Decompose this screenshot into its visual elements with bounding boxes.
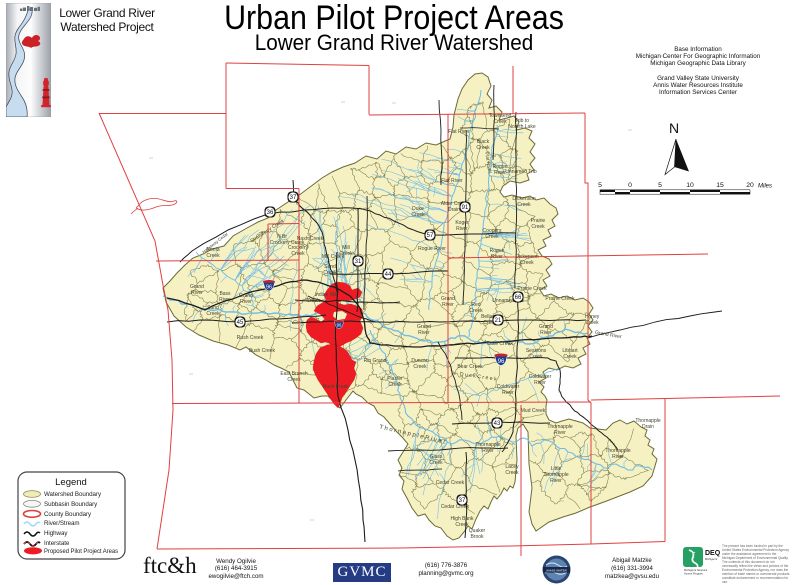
svg-text:County Boundary: County Boundary [44, 511, 92, 518]
svg-text:Prairie Creek: Prairie Creek [545, 296, 575, 302]
svg-text:Creek: Creek [291, 251, 305, 257]
svg-text:==: == [628, 128, 632, 132]
svg-text:==: == [149, 156, 153, 160]
svg-text:Creek: Creek [485, 234, 499, 240]
svg-text:River: River [240, 299, 252, 305]
svg-text:Nourth Lake: Nourth Lake [508, 124, 535, 130]
svg-text:Cedar Creek: Cedar Creek [436, 480, 465, 486]
svg-text:Creek: Creek [563, 354, 577, 360]
svg-text:Creek: Creek [206, 311, 220, 317]
svg-text:Creek: Creek [411, 212, 425, 218]
svg-text:==: == [310, 518, 314, 522]
svg-text:44: 44 [385, 272, 392, 278]
svg-text:Watershed Boundary: Watershed Boundary [44, 491, 102, 498]
svg-text:Mud Creek: Mud Creek [521, 408, 546, 414]
svg-text:River: River [456, 226, 468, 232]
svg-text:Creek: Creek [520, 260, 534, 266]
svg-text:31: 31 [355, 259, 362, 265]
svg-text:Buck Creek: Buck Creek [323, 384, 349, 390]
svg-text:Creek: Creek [469, 308, 483, 314]
svg-text:ANNIS WATER: ANNIS WATER [546, 568, 567, 572]
svg-text:River: River [191, 290, 203, 296]
svg-text:Miles: Miles [758, 184, 772, 190]
svg-text:==: == [392, 101, 396, 105]
svg-text:Source Program: Source Program [684, 572, 703, 576]
svg-text:Creek: Creek [388, 382, 402, 388]
svg-text:Drain: Drain [642, 424, 654, 430]
svg-text:Creek: Creek [287, 377, 301, 383]
svg-text:==: == [189, 372, 193, 376]
svg-text:Rio Grand: Rio Grand [364, 358, 387, 364]
svg-text:Michigan's Nonpoint: Michigan's Nonpoint [684, 568, 708, 572]
svg-text:River: River [219, 297, 231, 303]
svg-text:0: 0 [628, 182, 632, 189]
svg-text:Bear Creek: Bear Creek [457, 364, 483, 370]
svg-text:DEQ: DEQ [705, 550, 721, 557]
svg-text:Creek: Creek [505, 470, 519, 476]
svg-text:Creek: Creek [413, 364, 427, 370]
svg-text:Highway: Highway [44, 530, 68, 537]
svg-text:River: River [418, 330, 430, 336]
svg-text:River: River [482, 448, 494, 454]
svg-text:5: 5 [658, 182, 662, 189]
svg-text:River: River [534, 380, 546, 386]
svg-text:Creek: Creek [455, 522, 469, 528]
svg-text:River: River [612, 454, 624, 460]
svg-text:45: 45 [237, 320, 244, 326]
svg-text:River/Stream: River/Stream [44, 520, 80, 527]
svg-text:36: 36 [267, 210, 274, 216]
svg-text:River: River [540, 330, 552, 336]
svg-text:Rogue River: Rogue River [418, 246, 446, 252]
svg-text:Unnamed Trib: Unnamed Trib [505, 169, 537, 175]
svg-text:Michigan's: Michigan's [705, 557, 718, 561]
svg-text:10: 10 [686, 182, 694, 189]
svg-text:Flat River: Flat River [441, 178, 463, 184]
svg-text:River: River [442, 302, 454, 308]
svg-text:20: 20 [746, 182, 754, 189]
svg-text:96: 96 [266, 284, 272, 290]
svg-text:Proposed Pilot Project Areas: Proposed Pilot Project Areas [44, 548, 118, 555]
svg-text:21: 21 [495, 318, 502, 324]
svg-text:Bush Creek: Bush Creek [249, 348, 276, 354]
svg-text:96: 96 [337, 323, 342, 328]
svg-text:Subbasin Boundary: Subbasin Boundary [44, 501, 98, 508]
svg-text:Creek: Creek [306, 298, 320, 304]
svg-text:River: River [502, 390, 514, 396]
svg-text:==: == [558, 390, 562, 394]
svg-text:==: == [560, 499, 564, 503]
svg-text:Mill Creek: Mill Creek [322, 254, 345, 260]
svg-text:Prairie Creek: Prairie Creek [517, 286, 547, 292]
svg-text:Creek: Creek [531, 224, 545, 230]
svg-text:Creek: Creek [529, 354, 543, 360]
svg-text:Creek: Creek [517, 202, 531, 208]
svg-text:37: 37 [459, 498, 466, 504]
svg-text:Creek: Creek [493, 119, 507, 125]
svg-text:==: == [341, 100, 345, 104]
svg-text:River: River [550, 478, 562, 484]
svg-text:River: River [491, 254, 503, 260]
svg-text:Drain: Drain [448, 207, 460, 213]
svg-text:57: 57 [427, 233, 434, 239]
svg-text:15: 15 [716, 182, 724, 189]
svg-text:Creek: Creek [206, 253, 220, 259]
svg-text:Grand River: Grand River [594, 330, 622, 341]
svg-text:91: 91 [462, 205, 469, 211]
svg-text:43: 43 [494, 421, 501, 427]
svg-text:37: 37 [290, 195, 297, 201]
svg-text:Flat River: Flat River [448, 129, 470, 135]
svg-text:River: River [554, 430, 566, 436]
svg-text:Lake Creek: Lake Creek [487, 341, 513, 347]
svg-text:N: N [669, 120, 679, 136]
svg-text:Creek: Creek [429, 460, 443, 466]
svg-text:Brook: Brook [470, 534, 484, 540]
svg-text:Creek: Creek [476, 145, 490, 151]
svg-text:Creek: Creek [323, 270, 337, 276]
svg-text:Creek: Creek [585, 320, 599, 326]
svg-text:Interstate: Interstate [44, 540, 70, 547]
svg-text:Nash Creek: Nash Creek [297, 236, 324, 242]
svg-text:96: 96 [498, 359, 505, 365]
svg-text:Legend: Legend [55, 477, 87, 488]
svg-text:66: 66 [515, 295, 522, 301]
svg-text:Rush Creek: Rush Creek [237, 335, 264, 341]
svg-text:5: 5 [598, 182, 602, 189]
